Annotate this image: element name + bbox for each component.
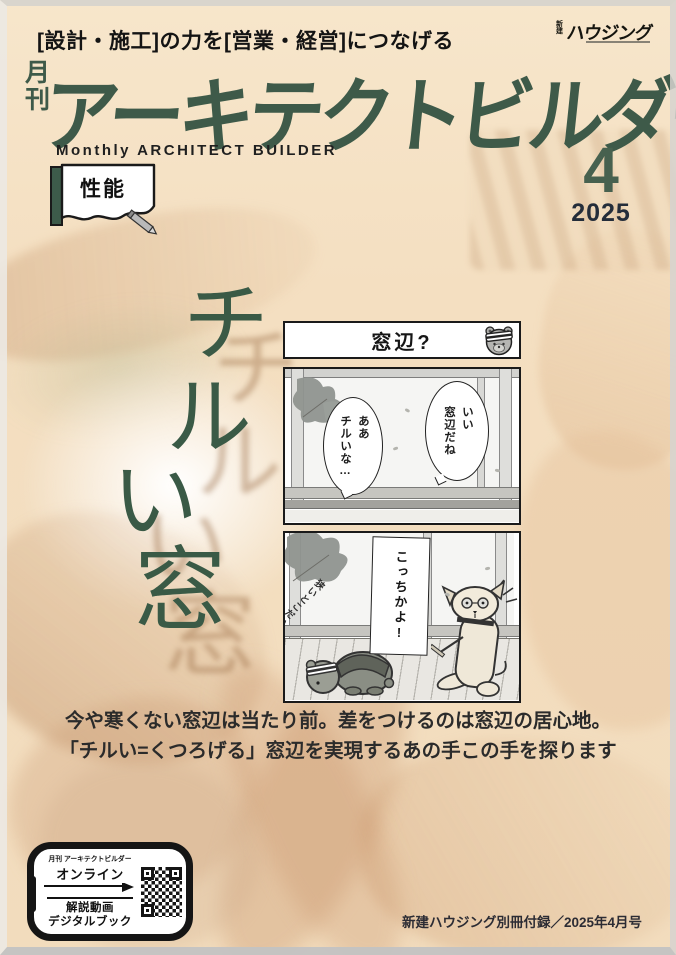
issue-month: 4 xyxy=(566,138,636,202)
phone-badge-video-label: 解説動画 xyxy=(66,901,114,915)
speech-bubble-left: ああ チルいな… xyxy=(323,397,383,495)
topic-badge-label: 性能 xyxy=(80,173,126,203)
phone-badge-small-label: 月刊 アーキテクトビルダー xyxy=(48,853,131,863)
window-sill xyxy=(285,487,519,499)
issue-credit: 新建ハウジング別冊付録／2025年4月号 xyxy=(402,911,642,931)
magazine-subtitle: Monthly ARCHITECT BUILDER xyxy=(56,142,337,159)
wall-below-sill xyxy=(285,510,519,522)
issue-year: 2025 xyxy=(559,199,643,228)
bear-face-icon xyxy=(481,324,515,358)
manga-title: 窓辺? xyxy=(371,326,432,355)
qr-finder xyxy=(169,867,182,880)
dog-character xyxy=(431,579,519,699)
banner-bubble: こっちかよ! xyxy=(369,536,430,655)
collage-blob xyxy=(524,219,676,482)
speech-bubble-right-text: いい 窓辺だね xyxy=(439,406,475,456)
feature-title-char: ル xyxy=(166,375,252,461)
publisher-logo-rule xyxy=(586,41,650,43)
manga-panel-1: いい 窓辺だね ああ チルいな… xyxy=(283,367,521,525)
window-sill-lower xyxy=(285,500,519,509)
qr-finder xyxy=(141,904,154,917)
feature-title-char: 窓 xyxy=(134,545,226,637)
divider xyxy=(47,897,133,898)
right-arrow-icon xyxy=(42,883,138,894)
feature-title-char: い xyxy=(112,458,198,544)
manga-title-bar: 窓辺? xyxy=(283,321,521,359)
speech-bubble-right: いい 窓辺だね xyxy=(425,381,489,481)
manga-panel-2: こっちかよ! 狭いとこだいすき xyxy=(283,531,521,703)
phone-badge-book-label: デジタルブック xyxy=(48,915,132,929)
lead-line-1: 今や寒くない窓辺は当たり前。差をつけるのは窓辺の居心地。 xyxy=(0,706,676,736)
speech-bubble-left-text: ああ チルいな… xyxy=(335,415,371,478)
collage-blob xyxy=(505,420,676,739)
feature-title-char: チ xyxy=(183,281,269,367)
lead-copy: 今や寒くない窓辺は当たり前。差をつけるのは窓辺の居心地。 「チルい=くつろげる」… xyxy=(0,706,676,766)
online-phone-badge: 月刊 アーキテクトビルダー オンライン 解説動画 デジタルブック xyxy=(27,842,193,941)
magazine-cover: [設計・施工]の力を[営業・経営]につなげる 新建 ハウジング 月刊 アーキテク… xyxy=(0,0,676,955)
qr-finder xyxy=(141,867,154,880)
lead-line-2: 「チルい=くつろげる」窓辺を実現するあの手この手を探ります xyxy=(0,736,676,766)
manga-strip: 窓辺? xyxy=(283,321,521,703)
publisher-logo-small: 新建 xyxy=(556,21,565,36)
topic-badge: 性能 xyxy=(46,160,172,244)
phone-badge-online-label: オンライン xyxy=(56,864,124,883)
window-post xyxy=(499,369,512,500)
banner-text: こっちかよ! xyxy=(389,550,410,642)
qr-code[interactable] xyxy=(141,867,182,917)
